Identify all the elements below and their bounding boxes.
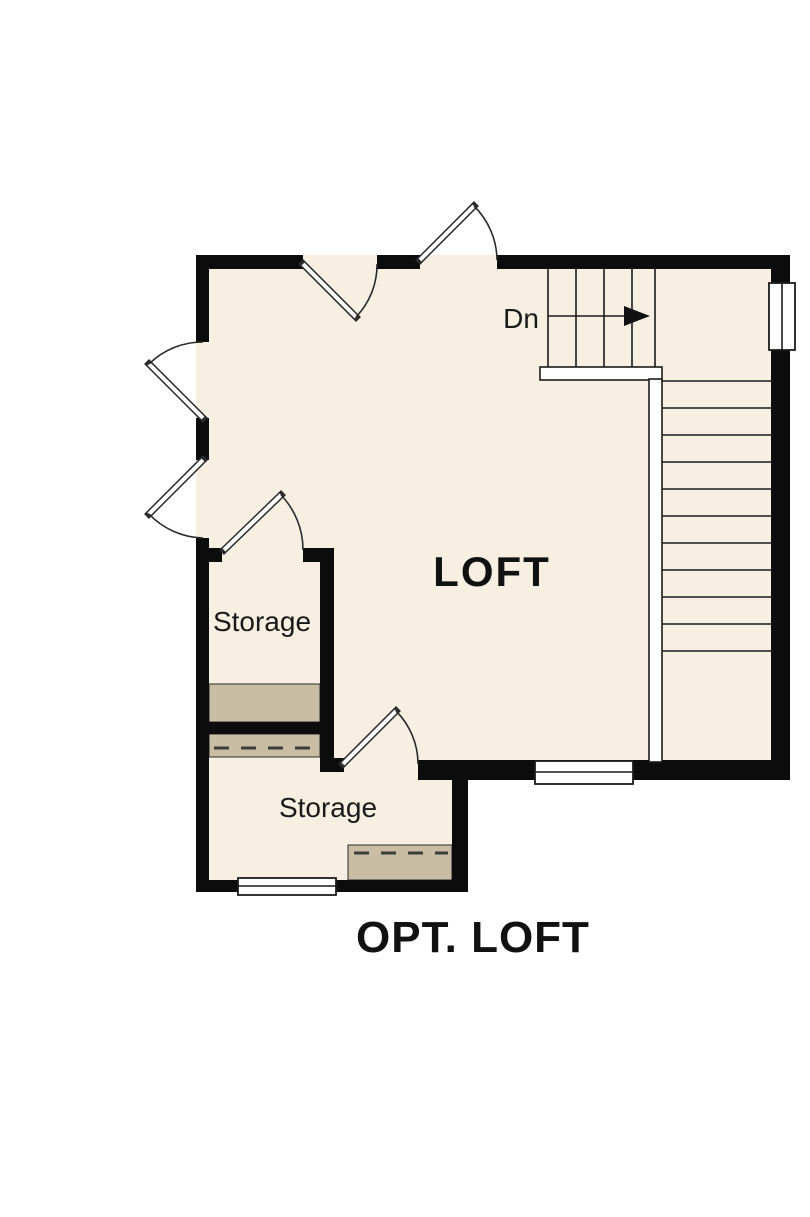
floor-plan-page: LOFT Storage Storage Dn OPT. LOFT [0,0,810,1217]
upper-storage-shelf [209,684,320,722]
top-wall [196,255,303,269]
floor-plan-drawing: LOFT Storage Storage Dn OPT. LOFT [0,0,810,1217]
left-wall [196,538,209,892]
lower-storage-top-shelf [209,734,320,757]
window-lower-storage [238,878,336,895]
stair-landing-rail [540,367,662,380]
top-wall [377,255,420,269]
upper-storage-bottom-wall [196,722,334,734]
window-right-wall [769,283,795,350]
window-loft-bottom [535,761,633,784]
upper-storage-top-wall [196,548,222,562]
stair-handrail [649,379,662,762]
left-wall [196,255,209,342]
loft-room-label: LOFT [433,548,551,595]
left-wall [196,418,209,460]
stair-down-label: Dn [503,303,539,334]
plan-title: OPT. LOFT [356,913,590,962]
lower-storage-label: Storage [279,792,377,823]
upper-storage-label: Storage [213,606,311,637]
top-wall [497,255,790,269]
lower-storage-right-wall [452,772,468,892]
lower-storage-bottom-shelf [348,845,452,880]
